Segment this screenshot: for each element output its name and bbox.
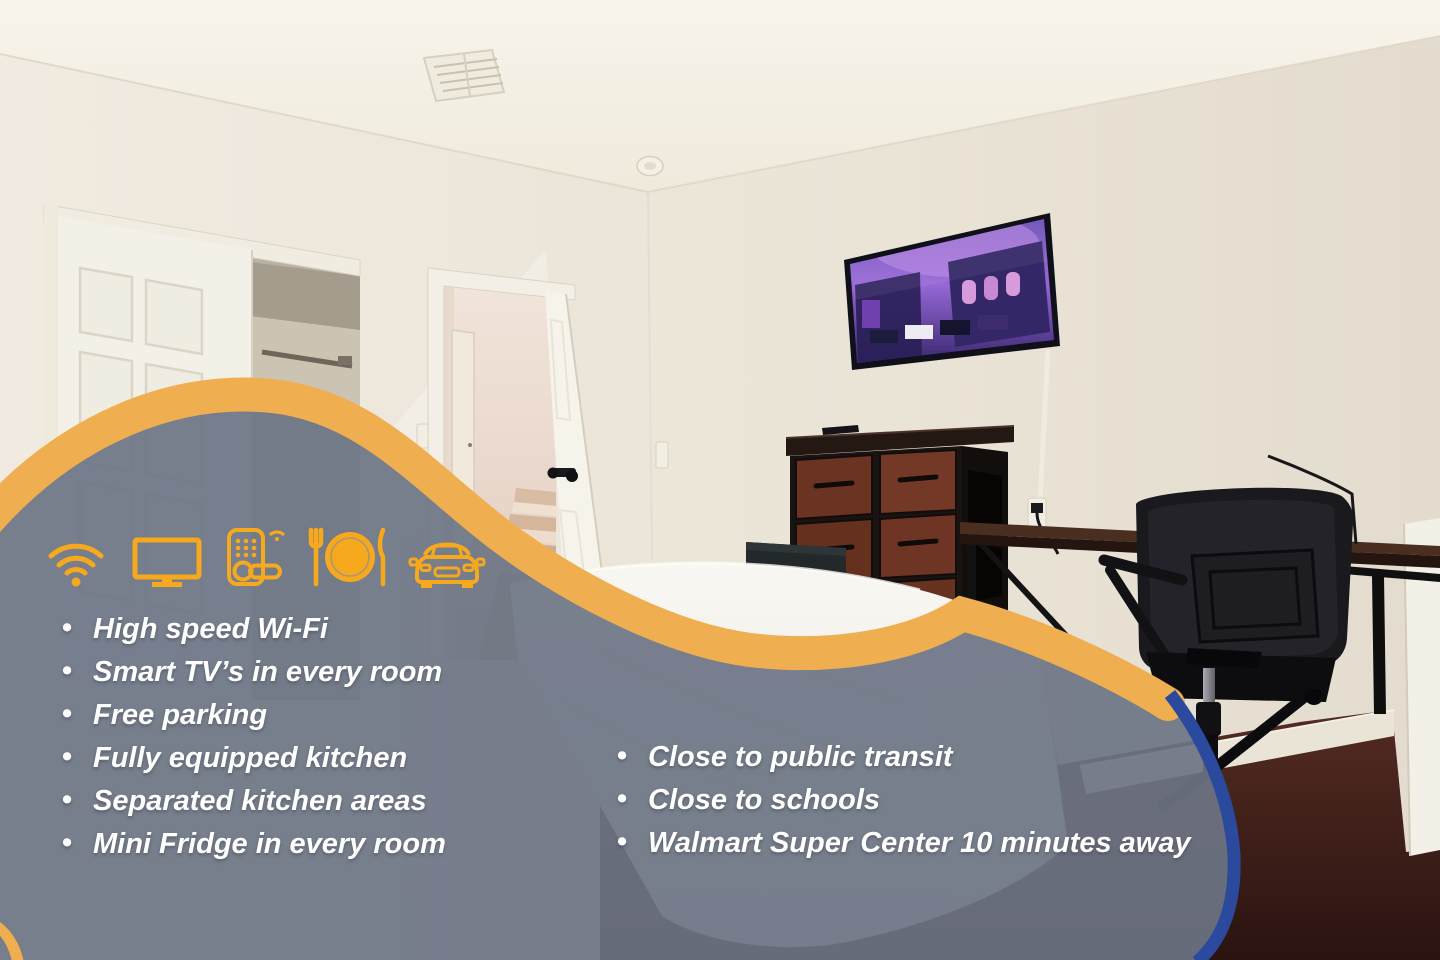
amenity-item: High speed Wi-Fi [60,608,446,651]
amenities-list-left: High speed Wi-Fi Smart TV’s in every roo… [60,608,446,866]
amenities-list-right: Close to public transit Close to schools… [615,736,1191,865]
amenity-item: Fully equipped kitchen [60,737,446,780]
amenity-item: Walmart Super Center 10 minutes away [615,822,1191,865]
amenity-item: Separated kitchen areas [60,780,446,823]
amenity-item: Smart TV’s in every room [60,651,446,694]
car-icon [408,531,486,589]
dining-icon [306,526,390,590]
amenity-item: Close to public transit [615,736,1191,779]
smart-lock-icon [226,526,288,588]
listing-promo-image: High speed Wi-Fi Smart TV’s in every roo… [0,0,1440,960]
amenity-item: Close to schools [615,779,1191,822]
wifi-icon [46,540,106,588]
amenity-item: Mini Fridge in every room [60,823,446,866]
smart-tv-icon [132,537,202,589]
amenity-item: Free parking [60,694,446,737]
